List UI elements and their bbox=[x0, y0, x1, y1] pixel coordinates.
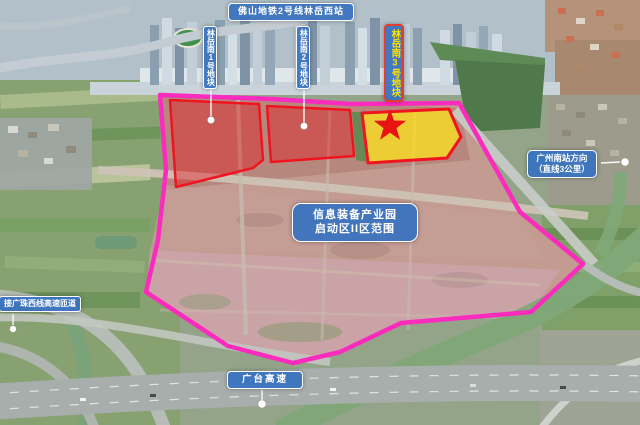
expressway-marker-dot bbox=[258, 400, 266, 408]
plot-2-label: 林岳南2号地块 bbox=[296, 26, 310, 89]
metro-station-label: 佛山地铁2号线林岳西站 bbox=[228, 3, 354, 21]
industrial-park-label-line2: 启动区II区范围 bbox=[293, 222, 417, 236]
plot-3-region bbox=[362, 109, 461, 163]
industrial-park-label-line1: 信息装备产业园 bbox=[293, 208, 417, 222]
guangzhou-south-label: 广州南站方向 （直线3公里） bbox=[527, 150, 597, 178]
gz-south-marker-dot bbox=[621, 158, 629, 166]
ramp-marker-dot bbox=[10, 326, 17, 333]
aerial-map: 佛山地铁2号线林岳西站 林岳南1号地块 林岳南2号地块 林岳南3号地块 信息装备… bbox=[0, 0, 640, 425]
plot-3-label: 林岳南3号地块 bbox=[384, 24, 404, 102]
plot-1-label: 林岳南1号地块 bbox=[203, 26, 217, 89]
guangtai-expressway-label: 广台高速 bbox=[227, 371, 303, 389]
plot-2-region bbox=[267, 106, 354, 162]
plot-1-marker-dot bbox=[207, 116, 214, 123]
expressway-ramp-label: 接广珠西线高速匝道 bbox=[0, 296, 81, 312]
guangzhou-south-label-line1: 广州南站方向 bbox=[534, 153, 590, 164]
industrial-park-label: 信息装备产业园 启动区II区范围 bbox=[292, 203, 418, 242]
guangzhou-south-label-line2: （直线3公里） bbox=[534, 164, 590, 175]
plot-2-marker-dot bbox=[300, 122, 307, 129]
